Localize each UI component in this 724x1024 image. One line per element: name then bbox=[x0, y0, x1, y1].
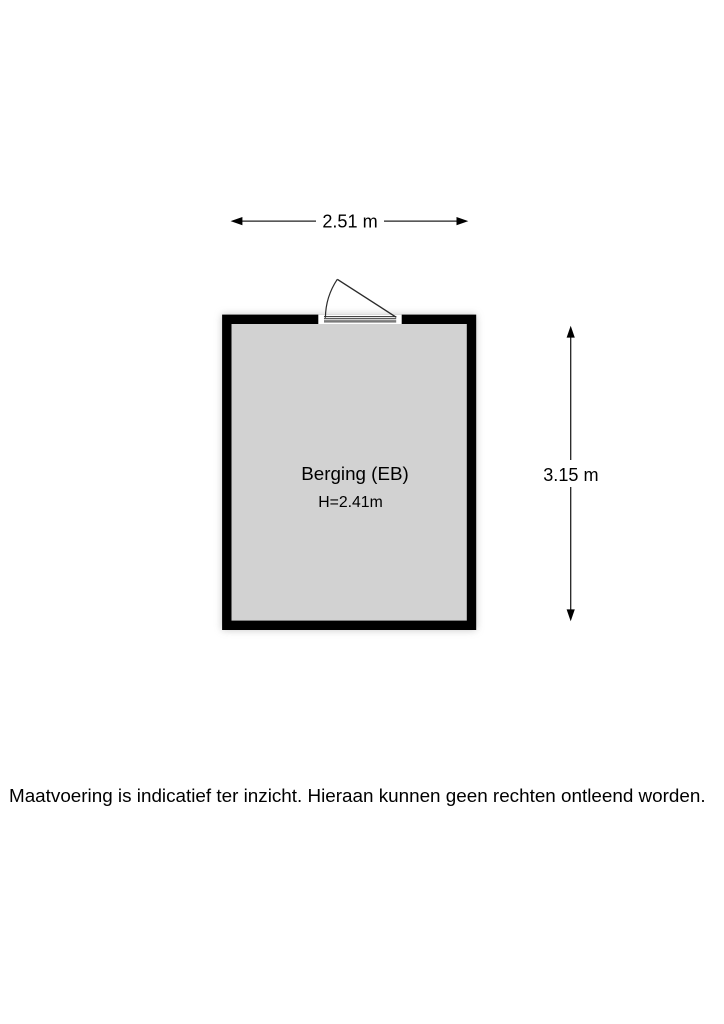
svg-text:Berging (EB): Berging (EB) bbox=[301, 463, 409, 484]
svg-text:2.51 m: 2.51 m bbox=[322, 211, 377, 231]
svg-text:3.15 m: 3.15 m bbox=[543, 465, 598, 485]
svg-text:H=2.41m: H=2.41m bbox=[318, 494, 383, 511]
svg-text:Maatvoering is indicatief ter: Maatvoering is indicatief ter inzicht. H… bbox=[9, 785, 706, 806]
